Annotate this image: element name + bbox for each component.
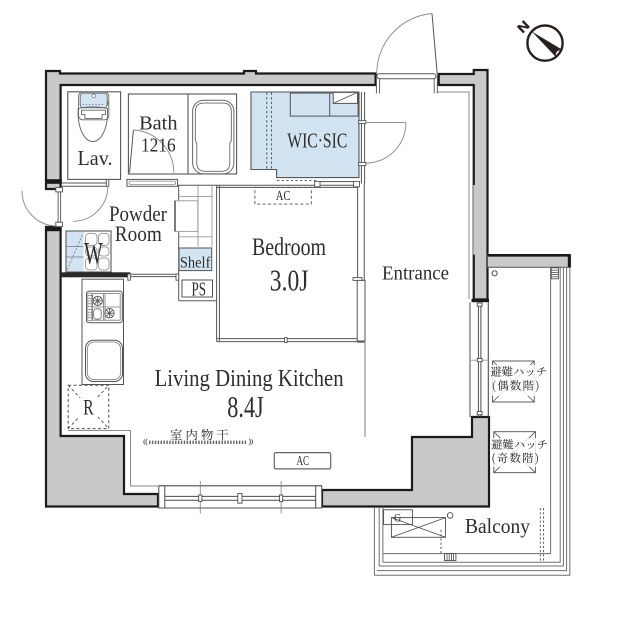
svg-text:1216: 1216	[141, 134, 176, 156]
svg-text:Room: Room	[115, 221, 162, 246]
svg-text:Living Dining Kitchen: Living Dining Kitchen	[155, 366, 344, 392]
svg-text:Shelf: Shelf	[180, 255, 211, 272]
svg-text:WIC·SIC: WIC·SIC	[287, 129, 347, 153]
svg-text:Balcony: Balcony	[465, 514, 530, 538]
svg-text:Bath: Bath	[139, 113, 177, 135]
svg-text:R: R	[83, 394, 94, 419]
svg-text:3.0J: 3.0J	[270, 262, 309, 297]
svg-text:AC: AC	[297, 453, 310, 468]
svg-text:AC: AC	[276, 188, 291, 203]
svg-text:G: G	[394, 510, 402, 524]
svg-text:Entrance: Entrance	[382, 262, 449, 284]
svg-text:8.4J: 8.4J	[227, 389, 263, 424]
svg-text:PS: PS	[192, 278, 207, 300]
svg-text:Lav.: Lav.	[78, 148, 113, 170]
svg-text:W: W	[84, 235, 103, 271]
svg-text:Bedroom: Bedroom	[252, 234, 326, 261]
